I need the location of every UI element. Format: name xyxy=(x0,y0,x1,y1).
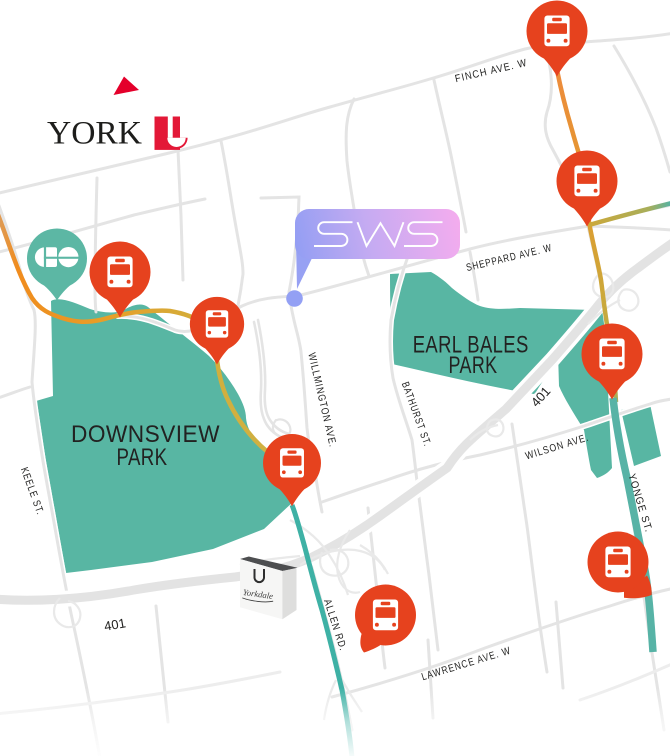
svg-text:YORK: YORK xyxy=(47,116,142,152)
svg-text:PARK: PARK xyxy=(449,352,498,379)
svg-text:PARK: PARK xyxy=(117,444,168,471)
